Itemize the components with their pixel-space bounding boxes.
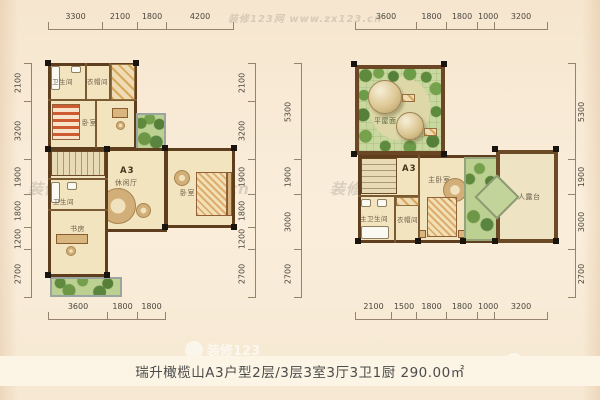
dim-label: 3200 — [238, 120, 247, 140]
wall-corner — [441, 61, 447, 67]
dim-label: 1500 — [392, 302, 416, 311]
dim-label: 2700 — [238, 263, 247, 283]
wall — [48, 178, 108, 180]
wall-corner — [415, 238, 421, 244]
unit-label: A3 — [402, 164, 417, 174]
wall — [95, 101, 97, 150]
dim-label: 3200 — [14, 120, 23, 140]
dim-label: 2700 — [577, 263, 586, 283]
nightstand — [419, 230, 426, 238]
dim-label: 1900 — [577, 167, 586, 187]
dim-label: 2700 — [14, 263, 23, 283]
toilet — [377, 199, 387, 207]
floor3-dim-right: 5300 1900 3000 2700 — [568, 63, 576, 298]
desk — [56, 234, 88, 244]
dim-label: 1800 — [14, 201, 23, 221]
headboard — [227, 172, 232, 216]
dim-label: 1200 — [238, 228, 247, 248]
wall-corner — [355, 238, 361, 244]
chair — [116, 121, 125, 130]
chair — [174, 170, 190, 186]
wall-corner — [104, 146, 110, 152]
floor3-dim-top: 3600 1800 1800 1000 3200 — [355, 22, 548, 30]
dim-label: 2100 — [14, 72, 23, 92]
dim-label: 5300 — [577, 101, 586, 121]
wall-corner — [553, 146, 559, 152]
dim-label: 1800 — [447, 12, 477, 21]
room-label-master-bath: 主卫生间 — [360, 213, 388, 223]
wall-corner — [231, 145, 237, 151]
unit-label: A3 — [120, 166, 135, 176]
caption-bar: 瑞升橄榄山A3户型2层/3层3室3厅3卫1厨 290.00㎡ — [0, 356, 600, 386]
wall-corner — [492, 146, 498, 152]
plan-caption: 瑞升橄榄山A3户型2层/3层3室3厅3卫1厨 290.00㎡ — [135, 361, 464, 381]
chair — [66, 246, 76, 256]
room-label-study: 书房 — [70, 224, 85, 234]
wall — [48, 209, 108, 211]
stairs — [51, 151, 105, 176]
floorplan-page: 装修123网 www.zx123.cn 装修123网 www.zx123.cn … — [0, 0, 600, 400]
dim-label: 3200 — [495, 12, 547, 21]
dim-label: 1900 — [238, 167, 247, 187]
wall-corner — [104, 272, 110, 278]
dim-label: 5300 — [284, 101, 293, 121]
dim-label: 1900 — [284, 167, 293, 187]
sink — [361, 199, 371, 207]
dim-label: 2100 — [103, 12, 137, 21]
dim-label: 1800 — [238, 201, 247, 221]
room-label-cloakroom: 衣帽间 — [397, 214, 418, 224]
bathtub — [361, 226, 389, 239]
dim-label: 3000 — [577, 212, 586, 232]
dim-label: 1900 — [14, 167, 23, 187]
room-label-bedroom-right: 卧室 — [180, 188, 195, 198]
dim-label: 1800 — [447, 302, 477, 311]
floor2-dim-bottom: 3600 1800 1800 — [48, 312, 166, 320]
round-table — [136, 203, 151, 218]
wall-corner — [351, 61, 357, 67]
wall-corner — [492, 238, 498, 244]
dim-label: 4200 — [167, 12, 233, 21]
roof-hatch — [424, 128, 437, 136]
balcony-garden — [50, 277, 122, 297]
dim-label: 1800 — [417, 302, 446, 311]
sloped-closet — [111, 64, 135, 100]
dim-label: 2100 — [356, 302, 391, 311]
desk — [112, 108, 128, 118]
room-label-cloakroom: 衣帽间 — [87, 76, 108, 86]
dim-label: 1000 — [478, 12, 494, 21]
bed — [52, 104, 80, 140]
wall-corner — [45, 146, 51, 152]
room-label-bath-lower: 卫生间 — [53, 196, 74, 206]
wall-corner — [553, 238, 559, 244]
wall-corner — [162, 224, 168, 230]
wardrobe — [396, 197, 419, 206]
toilet — [71, 66, 81, 73]
roof-hatch — [402, 94, 415, 102]
wall-corner — [351, 151, 357, 157]
dim-label: 2100 — [238, 72, 247, 92]
room-label-bath-top: 卫生间 — [52, 76, 73, 86]
room-label-roof: 平屋面 — [374, 116, 397, 126]
stairs — [361, 158, 397, 194]
skylight-dome — [368, 80, 402, 114]
bed — [427, 197, 457, 237]
wall-corner — [231, 224, 237, 230]
roof-garden — [355, 65, 445, 155]
wall-corner — [133, 60, 139, 66]
dim-label: 3300 — [49, 12, 102, 21]
floor2-dim-left: 2100 3200 1900 1800 1200 2700 — [24, 63, 32, 298]
toilet — [67, 182, 77, 190]
floor3-dim-left: 5300 1900 3000 2700 — [294, 63, 302, 298]
dim-label: 1200 — [14, 228, 23, 248]
dim-label: 3600 — [356, 12, 416, 21]
dim-label: 1800 — [417, 12, 446, 21]
bed — [196, 172, 227, 216]
wall-corner — [460, 238, 466, 244]
dim-label: 2700 — [284, 263, 293, 283]
skylight-dome — [396, 112, 424, 140]
wall-corner — [45, 60, 51, 66]
dim-label: 1800 — [138, 12, 166, 21]
dim-label: 3200 — [495, 302, 547, 311]
dim-label: 1800 — [108, 302, 137, 311]
dim-label: 3000 — [284, 212, 293, 232]
wall-corner — [162, 145, 168, 151]
wall-corner — [45, 272, 51, 278]
wall-corner — [441, 151, 447, 157]
dim-label: 1000 — [478, 302, 494, 311]
room-label-lounge: 休闲厅 — [115, 178, 138, 188]
floor3-dim-bottom: 2100 1500 1800 1800 1000 3200 — [355, 312, 548, 320]
dim-label: 3600 — [49, 302, 107, 311]
floor2-dim-top: 3300 2100 1800 4200 — [48, 22, 234, 30]
dim-label: 1800 — [138, 302, 165, 311]
floor2-dim-right: 2100 3200 1900 1800 1200 2700 — [248, 63, 256, 298]
